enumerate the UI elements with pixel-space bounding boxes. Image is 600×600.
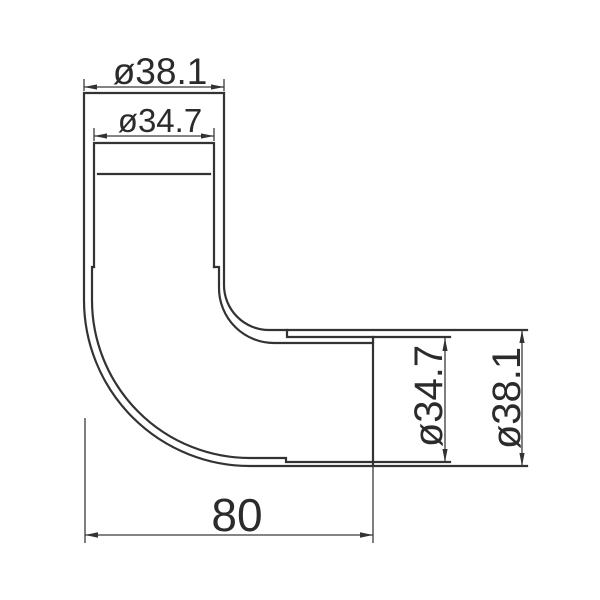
elbow-drawing-svg: ø38.1 ø34.7 ø34.7 ø38.1 80 [0, 0, 600, 600]
arrowhead-right-outer-bottom [519, 453, 524, 466]
arrowhead-top-inner-right [201, 133, 214, 138]
arrowhead-right-inner-bottom [442, 449, 447, 462]
dim-label-length: 80 [211, 489, 262, 541]
elbow-inner-wall-left [92, 267, 450, 462]
dim-label-right-inner: ø34.7 [407, 345, 451, 447]
technical-drawing-canvas: ø38.1 ø34.7 ø34.7 ø38.1 80 [0, 0, 600, 600]
arrowhead-top-outer-right [211, 84, 224, 89]
elbow-exterior-right-outline [224, 93, 527, 330]
elbow-exterior-left-outline [84, 93, 527, 466]
elbow-inner-wall-right [214, 267, 373, 343]
arrowhead-top-inner-left [94, 133, 107, 138]
dim-label-top-outer: ø38.1 [113, 51, 208, 92]
top-socket-bore [94, 143, 214, 267]
arrowhead-length-left [85, 532, 98, 538]
arrowhead-top-outer-left [84, 84, 97, 89]
arrowhead-length-right [360, 532, 373, 538]
arrowhead-right-outer-top [519, 330, 524, 343]
dim-label-top-inner: ø34.7 [118, 102, 202, 139]
dim-label-right-outer: ø38.1 [485, 347, 529, 449]
